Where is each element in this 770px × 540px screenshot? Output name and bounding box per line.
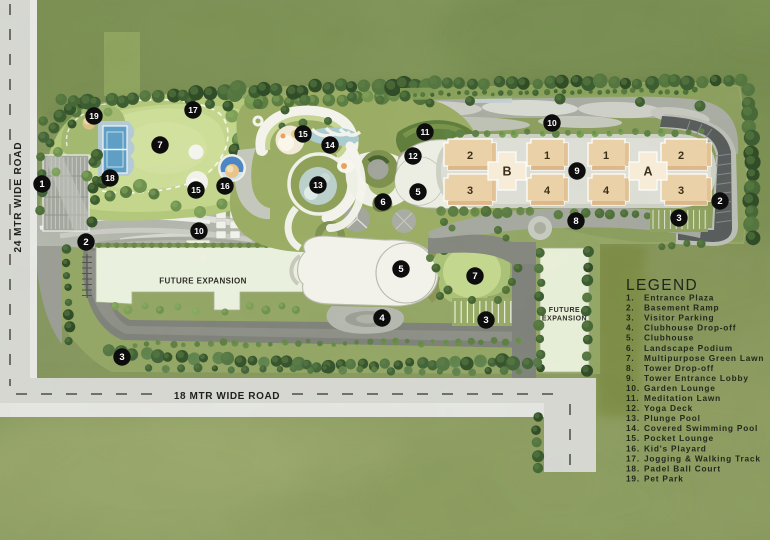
svg-text:15: 15	[191, 185, 201, 195]
svg-text:LEGEND: LEGEND	[626, 277, 698, 294]
svg-text:10: 10	[194, 226, 204, 236]
svg-text:3: 3	[119, 352, 124, 363]
svg-text:Pocket Lounge: Pocket Lounge	[644, 433, 714, 443]
svg-text:9: 9	[574, 166, 579, 177]
svg-text:8.: 8.	[626, 363, 635, 373]
svg-text:Covered Swimming Pool: Covered Swimming Pool	[644, 423, 758, 433]
svg-text:18.: 18.	[626, 463, 640, 473]
svg-text:7: 7	[157, 140, 162, 151]
svg-text:3: 3	[676, 213, 681, 224]
svg-text:Basement Ramp: Basement Ramp	[644, 303, 719, 313]
svg-text:6: 6	[380, 197, 385, 208]
svg-text:Clubhouse: Clubhouse	[644, 333, 694, 343]
svg-text:Tower Drop-off: Tower Drop-off	[644, 363, 714, 373]
svg-text:4: 4	[379, 313, 385, 324]
svg-text:16: 16	[220, 181, 230, 191]
svg-text:18: 18	[105, 173, 115, 183]
svg-text:Jogging & Walking Track: Jogging & Walking Track	[644, 453, 761, 463]
svg-text:13: 13	[313, 180, 323, 190]
svg-text:4.: 4.	[626, 323, 635, 333]
svg-text:Entrance Plaza: Entrance Plaza	[644, 293, 714, 303]
svg-text:Kid's Playard: Kid's Playard	[644, 443, 707, 453]
svg-text:7.: 7.	[626, 353, 635, 363]
svg-text:Visitor Parking: Visitor Parking	[644, 313, 714, 323]
svg-text:9.: 9.	[626, 373, 635, 383]
svg-text:Yoga Deck: Yoga Deck	[644, 403, 693, 413]
svg-text:14: 14	[325, 140, 335, 150]
svg-text:11: 11	[421, 127, 430, 137]
svg-text:12: 12	[408, 151, 418, 161]
svg-text:Garden Lounge: Garden Lounge	[644, 383, 716, 393]
svg-text:3.: 3.	[626, 313, 635, 323]
svg-text:2: 2	[717, 196, 722, 207]
svg-text:Clubhouse Drop-off: Clubhouse Drop-off	[644, 323, 736, 333]
svg-text:2.: 2.	[626, 303, 635, 313]
svg-text:10: 10	[547, 118, 557, 128]
svg-text:13.: 13.	[626, 413, 640, 423]
svg-text:5.: 5.	[626, 333, 635, 343]
svg-text:17.: 17.	[626, 453, 640, 463]
svg-text:19.: 19.	[626, 473, 640, 483]
svg-text:11.: 11.	[626, 393, 639, 403]
svg-text:5: 5	[398, 264, 404, 275]
svg-text:5: 5	[415, 187, 421, 198]
svg-text:1: 1	[39, 179, 45, 190]
svg-text:19: 19	[89, 111, 99, 121]
svg-text:Meditation Lawn: Meditation Lawn	[644, 393, 721, 403]
svg-text:Padel Ball Court: Padel Ball Court	[644, 463, 721, 473]
svg-text:8: 8	[573, 216, 578, 227]
svg-text:2: 2	[83, 237, 88, 248]
svg-text:Multipurpose Green Lawn: Multipurpose Green Lawn	[644, 353, 764, 363]
svg-text:7: 7	[472, 271, 477, 282]
svg-text:Plunge Pool: Plunge Pool	[644, 413, 701, 423]
svg-text:Landscape Podium: Landscape Podium	[644, 343, 733, 353]
svg-text:12.: 12.	[626, 403, 640, 413]
svg-text:16.: 16.	[626, 443, 640, 453]
svg-text:3: 3	[483, 315, 488, 326]
svg-text:17: 17	[188, 105, 198, 115]
svg-text:1.: 1.	[626, 293, 635, 303]
svg-text:14.: 14.	[626, 423, 640, 433]
svg-text:6.: 6.	[626, 343, 635, 353]
svg-text:15.: 15.	[626, 433, 640, 443]
svg-text:Tower Entrance Lobby: Tower Entrance Lobby	[644, 373, 749, 383]
svg-text:10.: 10.	[626, 383, 640, 393]
svg-text:Pet Park: Pet Park	[644, 473, 684, 483]
svg-text:15: 15	[298, 129, 308, 139]
